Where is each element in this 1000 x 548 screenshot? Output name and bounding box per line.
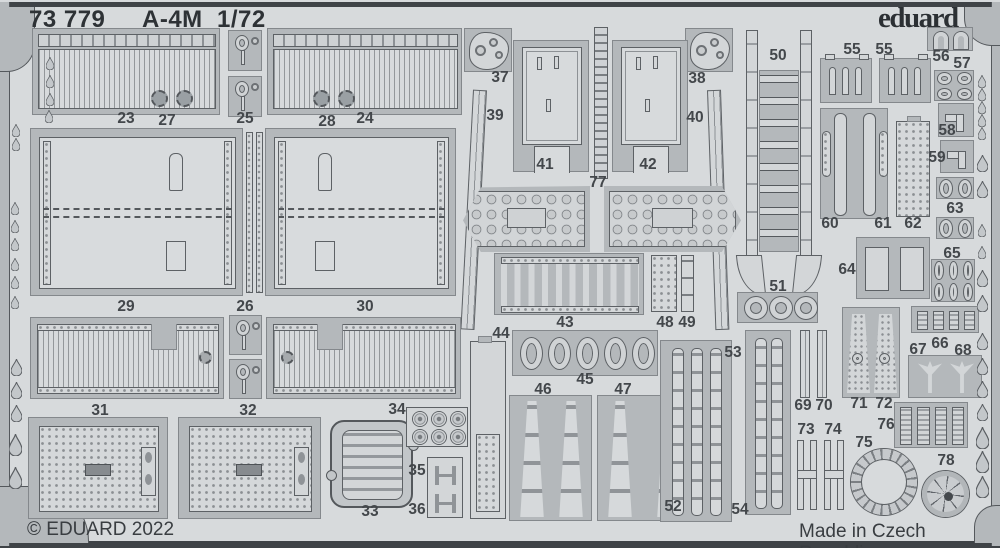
teardrop-hole-shape	[11, 238, 19, 251]
teardrop-hole-icon	[977, 270, 988, 287]
part-detail	[501, 257, 639, 264]
teardrop-hole-shape	[46, 93, 54, 106]
part-detail	[918, 54, 928, 60]
part-number-label: 59	[928, 149, 945, 167]
part-detail	[880, 354, 889, 363]
part-detail	[862, 460, 906, 504]
part-number-label: 77	[589, 174, 606, 192]
part-number-label: 60	[821, 215, 838, 233]
part-number-label: 51	[769, 278, 786, 296]
part-number-label: 50	[769, 47, 786, 65]
part-number-label: 57	[953, 55, 970, 73]
part-detail	[797, 470, 817, 479]
part-number-label: 28	[318, 113, 335, 131]
part-number-label: 58	[938, 122, 955, 140]
teardrop-hole-icon	[46, 75, 54, 88]
part-detail	[432, 430, 446, 444]
teardrop-hole-icon	[46, 93, 54, 106]
part-detail	[672, 348, 684, 516]
part-detail	[938, 89, 951, 100]
pe-part-29	[30, 128, 243, 296]
part-detail	[636, 57, 641, 70]
part-detail	[237, 321, 249, 335]
part-number-label: 70	[815, 397, 832, 415]
pe-part-67-68	[908, 355, 982, 398]
part-detail	[935, 262, 943, 279]
teardrop-hole-shape	[977, 270, 988, 287]
part-detail	[478, 336, 492, 343]
teardrop-hole-icon	[977, 381, 988, 398]
teardrop-hole-shape	[11, 276, 19, 289]
part-detail	[37, 324, 219, 331]
pe-part-38	[685, 28, 733, 72]
teardrop-hole-icon	[11, 405, 22, 422]
part-number-label: 30	[356, 298, 373, 316]
part-detail	[145, 474, 152, 485]
pe-part-43	[494, 253, 644, 315]
teardrop-hole-icon	[977, 155, 988, 172]
part-number-label: 40	[686, 109, 703, 127]
part-detail	[278, 141, 286, 285]
part-detail	[43, 208, 232, 210]
part-detail	[825, 54, 835, 60]
part-detail	[315, 241, 335, 271]
part-detail	[38, 34, 216, 47]
part-detail	[241, 96, 245, 111]
part-detail	[959, 220, 971, 237]
part-detail	[900, 407, 912, 445]
pe-part-30	[265, 128, 456, 296]
part-detail	[43, 216, 232, 218]
part-number-label: 26	[236, 298, 253, 316]
pe-part-41	[513, 40, 589, 172]
part-detail	[759, 70, 799, 252]
part-number-label: 65	[943, 245, 960, 263]
part-number-label: 49	[678, 314, 695, 332]
pe-part-51	[737, 292, 818, 323]
part-detail	[817, 330, 827, 398]
part-number-label: 56	[932, 48, 949, 66]
teardrop-hole-icon	[977, 181, 988, 198]
part-detail	[252, 322, 260, 330]
part-detail	[917, 311, 928, 330]
part-detail	[652, 208, 693, 228]
pe-part-53-54	[745, 330, 791, 515]
part-detail	[522, 47, 582, 145]
pe-part-26b	[256, 132, 263, 293]
part-number-label: 48	[656, 314, 673, 332]
part-detail	[954, 32, 968, 49]
pe-part-console-left	[463, 186, 590, 252]
teardrop-hole-shape	[977, 358, 988, 375]
part-detail	[37, 324, 219, 394]
part-detail	[964, 284, 972, 301]
part-detail	[855, 67, 862, 95]
part-detail	[952, 407, 964, 445]
part-number-label: 69	[794, 397, 811, 415]
part-number-label: 35	[408, 462, 425, 480]
pe-part-49	[681, 255, 694, 312]
teardrop-hole-icon	[11, 296, 19, 309]
part-detail	[824, 470, 844, 479]
part-detail	[879, 131, 888, 177]
part-number-label: 67	[909, 341, 926, 359]
part-number-label: 64	[838, 261, 855, 279]
part-detail	[949, 311, 960, 330]
part-detail	[501, 306, 639, 313]
part-detail	[199, 351, 212, 364]
part-detail	[645, 99, 650, 112]
teardrop-hole-icon	[978, 101, 986, 114]
teardrop-hole-shape	[11, 258, 19, 271]
part-detail	[432, 412, 446, 426]
part-detail	[236, 82, 248, 96]
teardrop-hole-icon	[976, 451, 989, 473]
part-detail	[696, 45, 707, 56]
teardrop-hole-shape	[977, 155, 988, 172]
part-detail	[413, 430, 427, 444]
teardrop-hole-icon	[978, 88, 986, 101]
part-number-label: 41	[536, 156, 553, 174]
part-detail	[716, 51, 724, 59]
teardrop-hole-shape	[11, 296, 19, 309]
part-number-label: 63	[946, 200, 963, 218]
pe-part-23-27	[32, 28, 220, 115]
part-detail	[278, 208, 445, 210]
made-in-text: Made in Czech Republic	[799, 521, 1000, 548]
pe-part-65	[931, 259, 975, 302]
teardrop-hole-shape	[46, 75, 54, 88]
part-detail	[605, 338, 626, 369]
part-number-label: 43	[556, 314, 573, 332]
pe-part-31	[28, 417, 168, 519]
part-detail	[274, 137, 449, 289]
teardrop-hole-icon	[978, 114, 986, 127]
part-detail	[273, 324, 456, 394]
pe-part-55b	[879, 58, 931, 103]
part-detail	[829, 67, 836, 95]
pe-part-46	[509, 395, 592, 521]
part-detail	[273, 34, 458, 47]
teardrop-hole-shape	[977, 295, 988, 312]
part-detail	[888, 67, 895, 95]
part-detail	[746, 30, 758, 268]
pe-part-76	[894, 402, 968, 448]
part-detail	[224, 141, 232, 285]
part-detail	[451, 430, 465, 444]
part-detail	[771, 338, 783, 509]
pe-part-slat-right	[266, 317, 461, 399]
part-detail	[413, 412, 427, 426]
part-detail	[842, 67, 849, 95]
teardrop-hole-icon	[11, 202, 19, 215]
part-number-label: 23	[117, 110, 134, 128]
teardrop-hole-shape	[976, 476, 989, 498]
part-number-label: 74	[824, 421, 841, 439]
pe-part-57	[934, 70, 974, 101]
part-detail	[633, 338, 654, 369]
part-number-label: 33	[361, 503, 378, 521]
part-detail	[242, 335, 246, 350]
pe-part-63b	[936, 217, 974, 239]
teardrop-hole-icon	[976, 427, 989, 449]
teardrop-hole-shape	[976, 427, 989, 449]
part-number-label: 62	[904, 215, 921, 233]
pe-part-66	[911, 306, 979, 333]
teardrop-hole-shape	[978, 246, 986, 259]
part-number-label: 53	[724, 344, 741, 362]
teardrop-hole-shape	[12, 138, 20, 151]
part-detail	[546, 99, 551, 112]
part-detail	[792, 255, 822, 295]
part-detail	[475, 45, 486, 56]
teardrop-hole-icon	[11, 276, 19, 289]
part-detail	[518, 401, 546, 517]
part-detail	[770, 297, 792, 319]
part-detail	[935, 407, 947, 445]
teardrop-hole-icon	[11, 382, 22, 399]
part-number-label: 71	[850, 395, 867, 413]
part-detail	[507, 208, 545, 228]
teardrop-hole-icon	[11, 220, 19, 233]
pe-part-48	[651, 255, 677, 312]
pe-part-37	[464, 28, 512, 72]
part-detail	[834, 113, 847, 216]
part-number-label: 75	[855, 434, 872, 452]
part-detail	[914, 67, 921, 95]
part-detail	[338, 90, 355, 107]
part-detail	[273, 49, 458, 109]
part-detail	[865, 247, 889, 291]
part-detail	[273, 387, 456, 394]
teardrop-hole-shape	[11, 382, 22, 399]
part-detail	[39, 137, 236, 289]
part-detail	[691, 348, 703, 516]
teardrop-hole-shape	[11, 405, 22, 422]
pe-part-52	[660, 340, 732, 522]
part-number-label: 72	[875, 395, 892, 413]
part-detail	[935, 284, 943, 301]
teardrop-hole-shape	[978, 75, 986, 88]
teardrop-hole-icon	[977, 295, 988, 312]
pe-fret-sheet: 73 779 A-4M 1/72 eduard © EDUARD 2022 Ma…	[0, 0, 1000, 548]
part-detail	[501, 264, 639, 306]
pe-part-77	[594, 27, 608, 179]
teardrop-hole-shape	[978, 88, 986, 101]
part-detail	[476, 434, 500, 512]
teardrop-hole-shape	[977, 381, 988, 398]
part-detail	[822, 131, 831, 177]
part-number-label: 24	[356, 110, 373, 128]
part-detail	[85, 464, 111, 476]
teardrop-hole-icon	[11, 359, 22, 376]
part-detail	[964, 311, 975, 330]
part-detail	[950, 361, 974, 393]
part-detail	[537, 57, 542, 70]
part-detail	[251, 83, 259, 91]
part-detail	[342, 430, 403, 500]
part-detail	[241, 50, 245, 65]
teardrop-hole-icon	[9, 434, 22, 456]
part-detail	[236, 464, 262, 476]
pe-part-44	[470, 341, 506, 519]
part-detail	[313, 90, 330, 107]
teardrop-hole-shape	[978, 114, 986, 127]
part-detail	[907, 116, 921, 122]
part-detail	[451, 412, 465, 426]
part-detail	[151, 324, 177, 350]
part-detail	[800, 30, 812, 268]
part-detail	[577, 338, 598, 369]
pe-part-25a	[228, 30, 262, 71]
teardrop-hole-shape	[977, 404, 988, 421]
part-detail	[318, 153, 332, 191]
copyright-text: © EDUARD 2022	[27, 519, 174, 541]
frame-left-rail	[0, 2, 10, 546]
pe-part-34	[406, 407, 468, 447]
part-detail	[298, 474, 305, 485]
part-number-label: 68	[954, 342, 971, 360]
part-detail	[944, 492, 953, 501]
part-detail	[917, 407, 929, 445]
teardrop-hole-shape	[9, 434, 22, 456]
teardrop-hole-shape	[977, 181, 988, 198]
pe-part-75	[851, 449, 917, 515]
part-detail	[950, 284, 958, 301]
part-detail	[958, 151, 966, 169]
part-detail	[606, 401, 634, 517]
part-detail	[278, 216, 445, 218]
part-number-label: 25	[236, 110, 253, 128]
teardrop-hole-icon	[977, 358, 988, 375]
part-detail	[521, 338, 542, 369]
pe-part-42	[612, 40, 688, 172]
part-detail	[958, 73, 971, 84]
part-number-label: 52	[664, 498, 681, 516]
part-detail	[549, 338, 570, 369]
part-detail	[489, 38, 498, 47]
pe-part-slat-left	[30, 317, 224, 399]
part-number-label: 36	[408, 501, 425, 519]
pe-part-69-70	[800, 330, 828, 398]
part-detail	[853, 354, 862, 363]
part-detail	[145, 452, 152, 463]
part-number-label: 55	[843, 41, 860, 59]
part-number-label: 37	[491, 69, 508, 87]
part-detail	[863, 113, 876, 216]
teardrop-hole-shape	[976, 451, 989, 473]
teardrop-hole-icon	[12, 124, 20, 137]
part-detail	[169, 153, 183, 191]
part-detail	[653, 56, 658, 69]
teardrop-hole-shape	[11, 359, 22, 376]
part-detail	[236, 36, 248, 50]
teardrop-hole-icon	[11, 238, 19, 251]
part-number-label: 42	[639, 156, 656, 174]
teardrop-hole-shape	[978, 101, 986, 114]
pe-part-32	[178, 417, 321, 519]
part-number-label: 78	[937, 452, 954, 470]
teardrop-hole-shape	[9, 467, 22, 489]
part-detail	[495, 51, 503, 59]
part-detail	[736, 255, 766, 295]
teardrop-hole-icon	[978, 75, 986, 88]
part-detail	[940, 180, 952, 197]
part-detail	[151, 90, 168, 107]
part-detail	[950, 262, 958, 279]
teardrop-hole-icon	[976, 476, 989, 498]
part-detail	[940, 220, 952, 237]
part-detail	[710, 348, 722, 516]
teardrop-hole-icon	[978, 127, 986, 140]
part-detail	[317, 324, 343, 350]
teardrop-hole-shape	[978, 127, 986, 140]
pe-part-35-36	[427, 457, 463, 518]
part-detail	[959, 180, 971, 197]
pe-part-55a	[820, 58, 872, 103]
part-number-label: 27	[158, 112, 175, 130]
frame-right-rail	[991, 2, 1000, 546]
teardrop-hole-icon	[978, 246, 986, 259]
part-number-label: 34	[388, 401, 405, 419]
teardrop-hole-shape	[977, 333, 988, 350]
part-detail	[242, 379, 246, 394]
part-detail	[557, 401, 585, 517]
pe-part-64	[856, 237, 930, 299]
part-detail	[745, 297, 767, 319]
pe-part-26a	[246, 132, 253, 293]
part-number-label: 61	[874, 215, 891, 233]
teardrop-hole-icon	[977, 333, 988, 350]
part-number-label: 66	[931, 335, 948, 353]
part-number-label: 38	[688, 70, 705, 88]
part-detail	[795, 297, 817, 319]
pe-part-60-61	[820, 108, 888, 219]
teardrop-hole-icon	[978, 224, 986, 237]
pe-part-hook-c1	[229, 315, 262, 355]
teardrop-hole-icon	[46, 57, 54, 70]
part-detail	[901, 67, 908, 95]
part-number-label: 44	[492, 325, 509, 343]
part-detail	[900, 247, 924, 291]
part-number-label: 46	[534, 381, 551, 399]
pe-part-hook-c2	[229, 359, 262, 399]
part-detail	[956, 114, 964, 132]
part-detail	[938, 73, 951, 84]
part-detail	[934, 32, 948, 49]
part-detail	[237, 365, 249, 379]
teardrop-hole-shape	[46, 57, 54, 70]
part-number-label: 45	[576, 371, 593, 389]
pe-part-63a	[936, 177, 974, 199]
part-number-label: 47	[614, 381, 631, 399]
part-detail	[435, 494, 456, 513]
part-detail	[326, 470, 337, 481]
part-number-label: 73	[797, 421, 814, 439]
part-detail	[964, 262, 972, 279]
teardrop-hole-icon	[9, 467, 22, 489]
teardrop-hole-shape	[978, 224, 986, 237]
part-detail	[918, 361, 942, 393]
part-detail	[710, 38, 719, 47]
part-detail	[298, 452, 305, 463]
teardrop-hole-icon	[45, 110, 53, 123]
part-detail	[958, 89, 971, 100]
pe-part-78	[922, 471, 969, 517]
part-detail	[252, 366, 260, 374]
part-detail	[273, 324, 456, 331]
part-number-label: 31	[91, 402, 108, 420]
